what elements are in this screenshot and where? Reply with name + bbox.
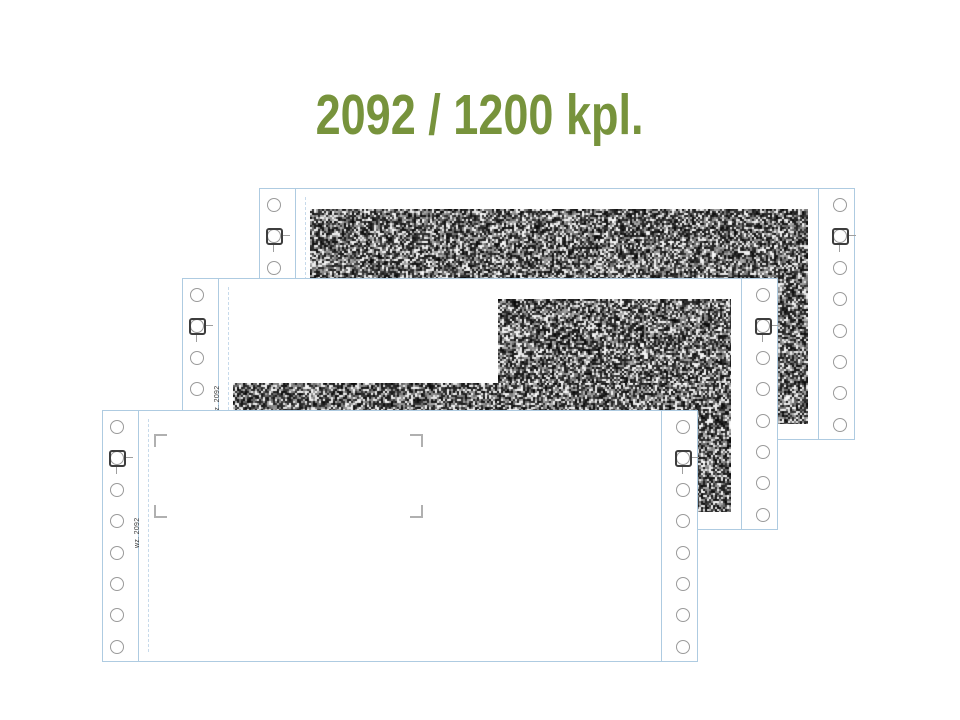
tractor-hole <box>110 420 124 434</box>
slide-canvas: 2092 / 1200 kpl. wz. 2092 wz. 2092 wz. 2… <box>0 0 960 720</box>
tractor-hole <box>110 640 124 654</box>
registration-mark <box>832 228 849 245</box>
tractor-hole <box>756 445 770 459</box>
tractor-hole <box>190 351 204 365</box>
perforation-line-right <box>661 411 662 661</box>
tractor-hole <box>110 546 124 560</box>
crop-mark-top-left <box>154 434 167 447</box>
tractor-hole <box>756 508 770 522</box>
tractor-hole <box>833 324 847 338</box>
tractor-hole <box>833 355 847 369</box>
title-row: 2092 / 1200 kpl. <box>0 85 960 160</box>
tractor-hole <box>190 288 204 302</box>
registration-mark <box>109 450 126 467</box>
tractor-hole <box>833 418 847 432</box>
tractor-hole <box>676 640 690 654</box>
tractor-hole <box>833 261 847 275</box>
perforation-line-right <box>741 279 742 529</box>
tractor-hole <box>676 577 690 591</box>
tractor-hole <box>756 351 770 365</box>
crop-mark-bottom-left <box>154 505 167 518</box>
tractor-hole <box>676 420 690 434</box>
tractor-hole <box>833 292 847 306</box>
form-code-label: wz. 2092 <box>134 522 142 548</box>
tractor-hole <box>110 608 124 622</box>
tractor-hole <box>190 382 204 396</box>
page-title: 2092 / 1200 kpl. <box>316 85 644 145</box>
tractor-hole <box>756 382 770 396</box>
margin-dashed-line-left <box>148 419 149 652</box>
crop-mark-bottom-right <box>410 505 423 518</box>
tractor-hole <box>756 476 770 490</box>
tractor-hole <box>676 483 690 497</box>
registration-mark <box>755 318 772 335</box>
tractor-hole <box>756 414 770 428</box>
tractor-hole <box>267 198 281 212</box>
registration-mark <box>189 318 206 335</box>
tractor-hole <box>267 261 281 275</box>
tractor-hole <box>833 198 847 212</box>
perforation-line-right <box>818 189 819 439</box>
sheet-front-blank: wz. 2092 <box>102 410 698 662</box>
tractor-hole <box>676 546 690 560</box>
registration-mark <box>675 450 692 467</box>
registration-mark <box>266 228 283 245</box>
tractor-hole <box>756 288 770 302</box>
tractor-hole <box>676 608 690 622</box>
tractor-hole <box>110 577 124 591</box>
tractor-hole <box>110 514 124 528</box>
tractor-hole <box>110 483 124 497</box>
tractor-hole <box>676 514 690 528</box>
crop-mark-top-right <box>410 434 423 447</box>
tractor-hole <box>833 386 847 400</box>
